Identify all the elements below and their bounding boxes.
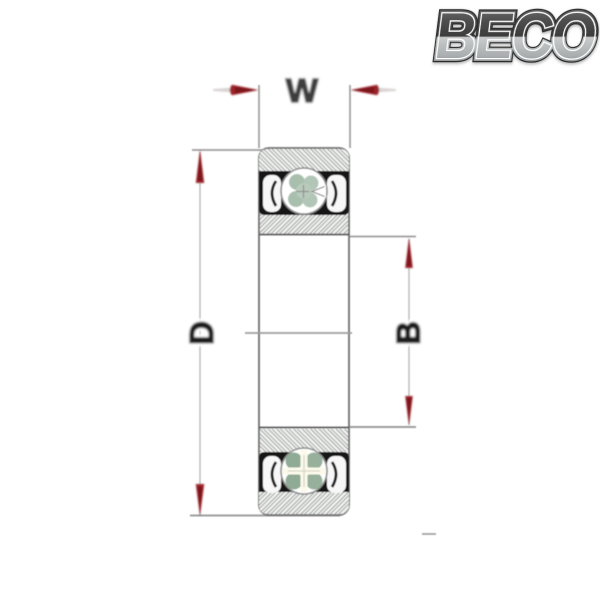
svg-text:W: W xyxy=(286,74,319,110)
svg-text:D: D xyxy=(183,321,220,345)
svg-text:BECO: BECO xyxy=(431,0,599,71)
svg-text:B: B xyxy=(391,321,427,344)
